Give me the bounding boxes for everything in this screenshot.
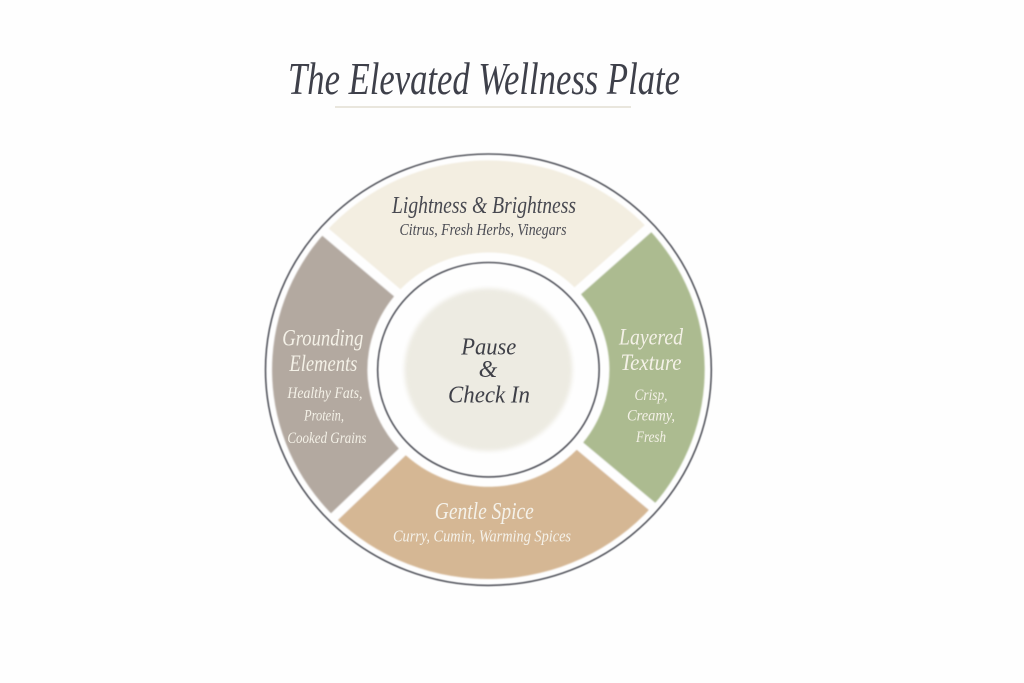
svg-text:&: &: [479, 357, 498, 383]
svg-text:Gentle Spice: Gentle Spice: [435, 499, 534, 525]
svg-text:Crisp,: Crisp,: [635, 387, 668, 404]
svg-text:Healthy Fats,: Healthy Fats,: [287, 385, 363, 402]
svg-text:Grounding: Grounding: [282, 326, 363, 351]
svg-text:Citrus, Fresh Herbs, Vinegars: Citrus, Fresh Herbs, Vinegars: [400, 220, 567, 239]
svg-text:The Elevated Wellness Plate: The Elevated Wellness Plate: [288, 53, 680, 104]
svg-text:Lightness & Brightness: Lightness & Brightness: [391, 193, 576, 219]
svg-text:Cooked Grains: Cooked Grains: [287, 430, 366, 447]
svg-text:Check In: Check In: [448, 383, 530, 409]
svg-text:Creamy,: Creamy,: [627, 408, 675, 425]
svg-text:Fresh: Fresh: [635, 429, 666, 446]
svg-text:Texture: Texture: [621, 350, 682, 375]
svg-text:Elements: Elements: [289, 351, 358, 376]
svg-text:Layered: Layered: [618, 325, 683, 350]
svg-text:Protein,: Protein,: [303, 408, 344, 425]
svg-text:Curry, Cumin, Warming Spices: Curry, Cumin, Warming Spices: [393, 526, 571, 545]
